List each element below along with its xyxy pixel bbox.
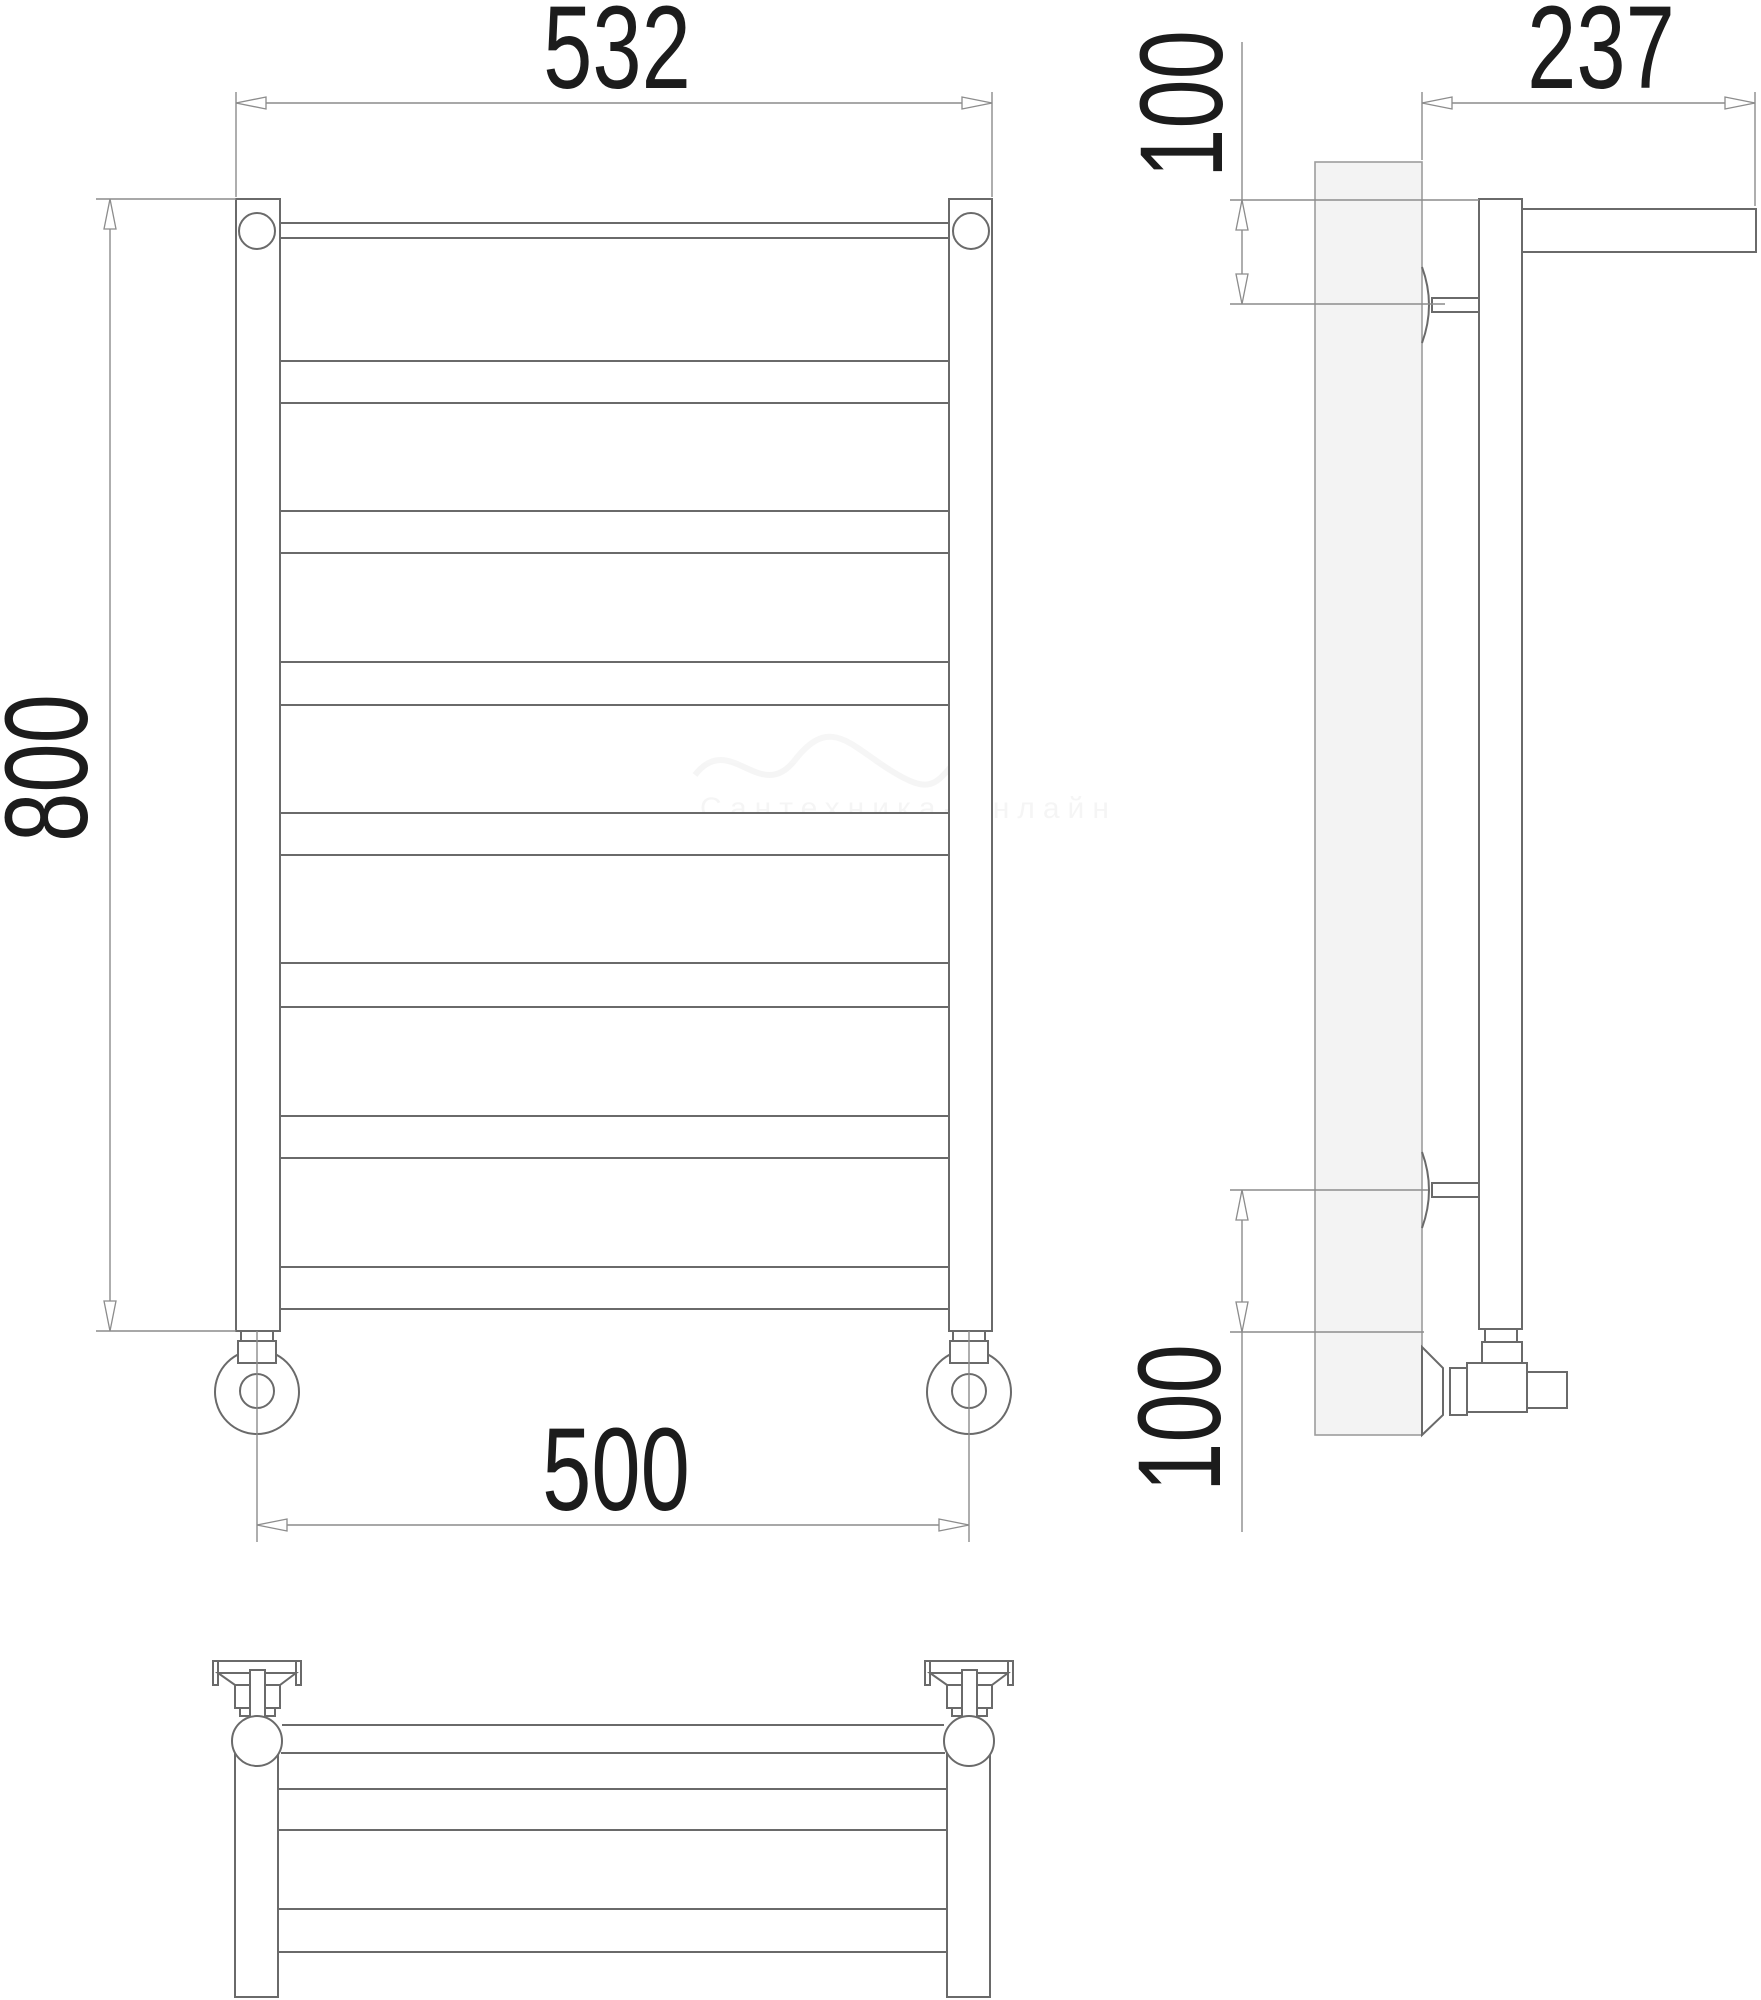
valve-inlet <box>1450 1368 1467 1415</box>
valve-outlet <box>1527 1372 1567 1408</box>
rung <box>280 813 949 855</box>
left-corner-joint <box>239 213 275 249</box>
top-shelf-rail <box>257 223 971 238</box>
dimension-depth: 237 <box>1422 0 1755 206</box>
top-wall-bracket <box>1422 267 1479 343</box>
right-corner-joint <box>953 213 989 249</box>
wall-plate <box>1315 162 1422 1435</box>
dimension-label-bottom-offset: 100 <box>1115 1344 1246 1492</box>
rung <box>280 963 949 1007</box>
valve-collar <box>1485 1329 1517 1342</box>
top-view <box>213 1661 1013 1997</box>
side-foot-cone <box>1422 1347 1443 1435</box>
rung <box>280 361 949 403</box>
dimension-height: 800 <box>0 199 236 1331</box>
watermark: Сантехника-Онлайн <box>695 737 1117 825</box>
side-view <box>1315 162 1756 1435</box>
dimension-label-overall-width: 532 <box>543 0 691 114</box>
valve-nut <box>1482 1342 1522 1363</box>
side-post-pipe <box>1479 199 1522 1329</box>
dimension-label-connection-spacing: 500 <box>542 1405 690 1536</box>
dimension-label-height: 800 <box>0 694 113 842</box>
valve-assembly <box>1450 1329 1567 1415</box>
dimension-overall-width: 532 <box>236 0 992 197</box>
front-view <box>215 199 1011 1434</box>
watermark-signature-curve <box>695 737 955 785</box>
dimension-label-depth: 237 <box>1527 0 1675 114</box>
side-shelf-tube <box>1522 209 1756 252</box>
drawing-canvas: Сантехника-Онлайн <box>0 0 1761 2000</box>
technical-drawing: Сантехника-Онлайн <box>0 0 1761 2000</box>
valve-body <box>1467 1363 1527 1412</box>
rung <box>280 1116 949 1158</box>
rung <box>280 1267 949 1309</box>
dimension-top-offset: 100 <box>1117 30 1479 304</box>
bottom-wall-bracket <box>1422 1152 1479 1228</box>
right-post <box>949 199 992 1331</box>
dimension-connection-spacing: 500 <box>257 1331 969 1542</box>
rung <box>280 511 949 553</box>
rung <box>280 662 949 705</box>
dimension-label-top-offset: 100 <box>1117 30 1248 178</box>
left-post <box>236 199 280 1331</box>
